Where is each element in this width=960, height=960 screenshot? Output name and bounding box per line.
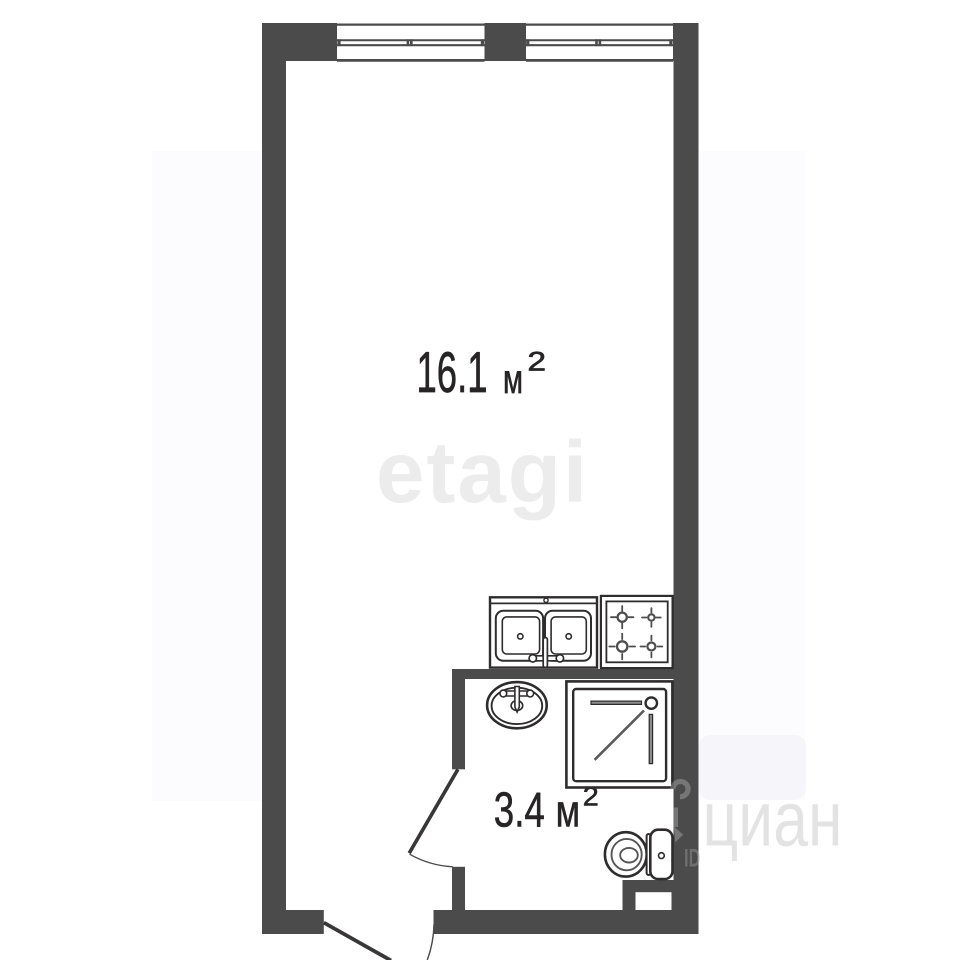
svg-text:etagi: etagi: [376, 424, 589, 521]
svg-text:м: м: [556, 786, 580, 837]
svg-text:ID: ID: [684, 845, 701, 873]
svg-text:3.4: 3.4: [494, 784, 545, 838]
svg-text:2: 2: [528, 347, 547, 377]
svg-text:м: м: [503, 356, 523, 402]
svg-text:16.1: 16.1: [417, 341, 488, 405]
